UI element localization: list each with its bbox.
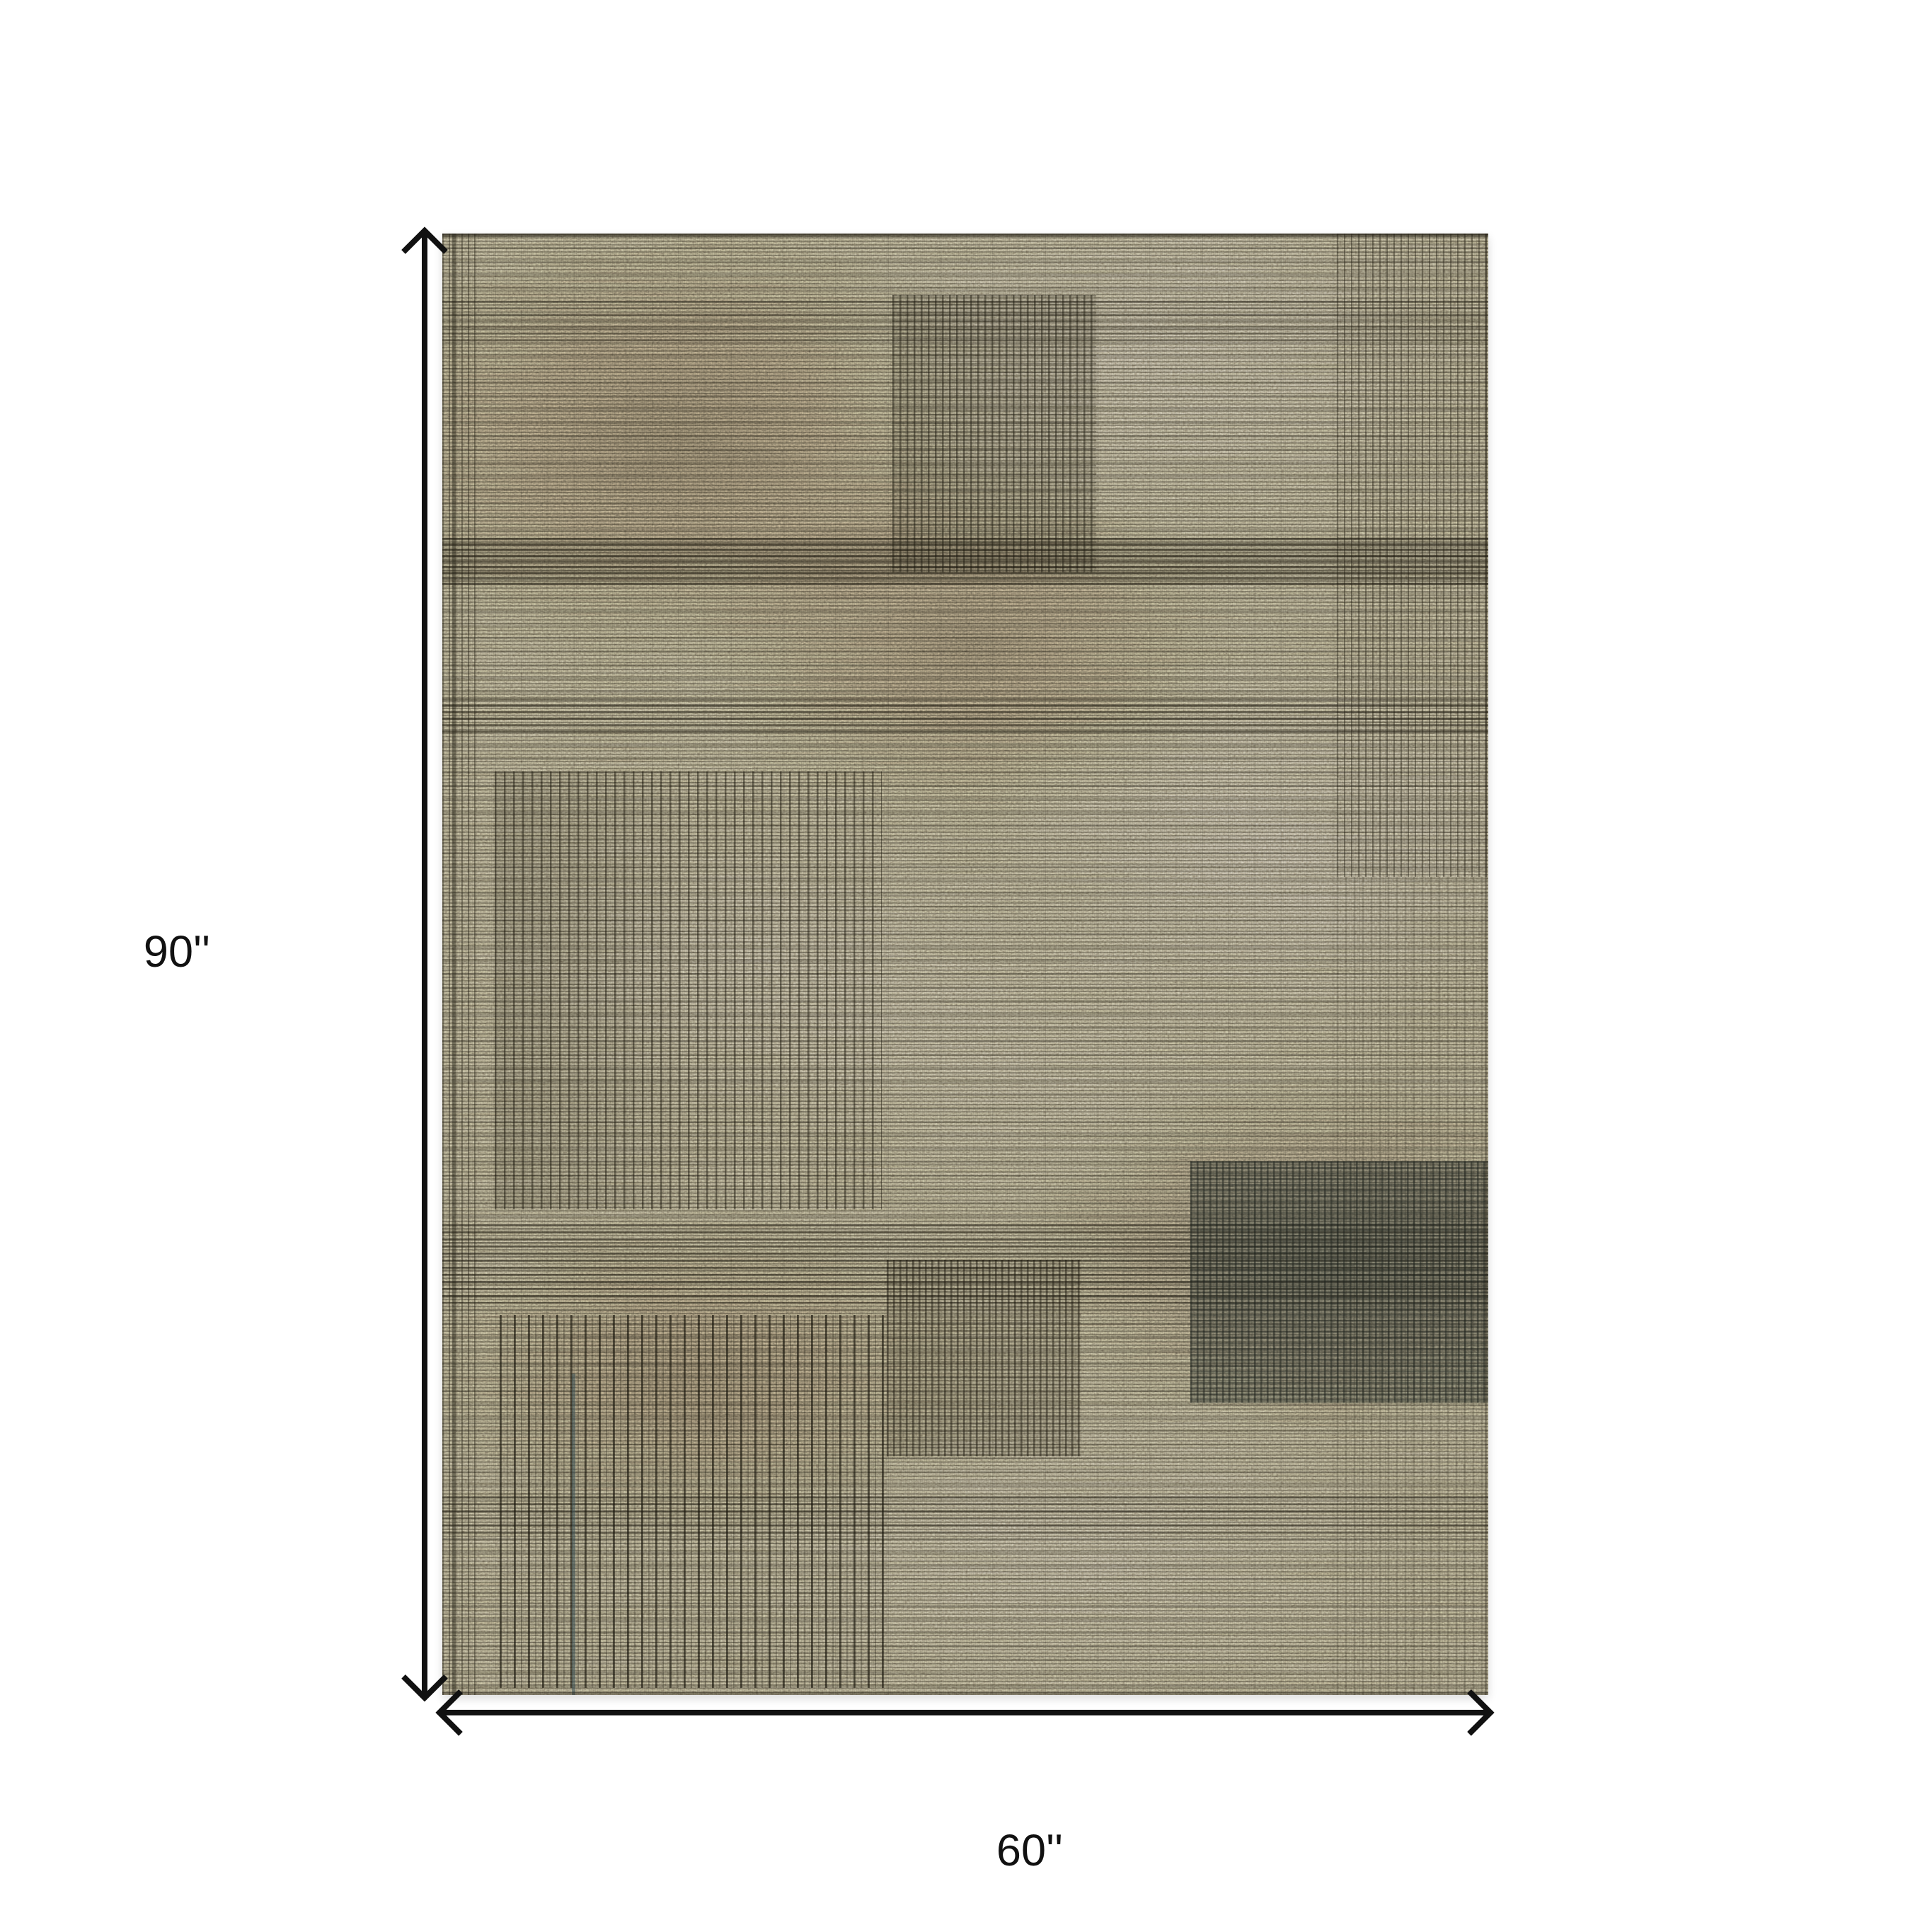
rug-bottom-selvage-line [442, 1692, 1488, 1695]
width-dimension-label: 60'' [980, 1827, 1079, 1874]
rug-pattern-horizontal-band [442, 538, 1488, 585]
height-arrow-bottom-head [403, 1677, 446, 1698]
height-arrow-top-head [403, 231, 446, 252]
rug-top-selvage-line [442, 234, 1488, 237]
height-dimension-label: 90'' [131, 928, 223, 975]
rug-pattern-left-edge-pinstripes [442, 234, 480, 1695]
rug-pattern-horizontal-band [442, 698, 1488, 734]
rug-left-selvage-line [452, 234, 455, 1695]
rug-pattern-teal-accent-stripe [572, 1374, 575, 1695]
rug-pattern-bottom-left-pinstripe-block [500, 1315, 887, 1688]
width-arrow-right-head [1469, 1691, 1490, 1734]
width-arrow-left-head [439, 1691, 461, 1734]
rug-image [442, 234, 1488, 1695]
rug-pattern-center-pinstripe-patch [887, 1260, 1080, 1457]
rug-right-selvage-line [1485, 234, 1487, 1695]
rug-pattern-mid-left-pinstripe-block [495, 771, 882, 1210]
dimension-diagram: 90'' 60'' [0, 0, 1932, 1932]
rug-pattern-horizontal-band [442, 301, 1488, 345]
rug-pattern-bottom-right-dark-crosshatch [1190, 1161, 1488, 1403]
